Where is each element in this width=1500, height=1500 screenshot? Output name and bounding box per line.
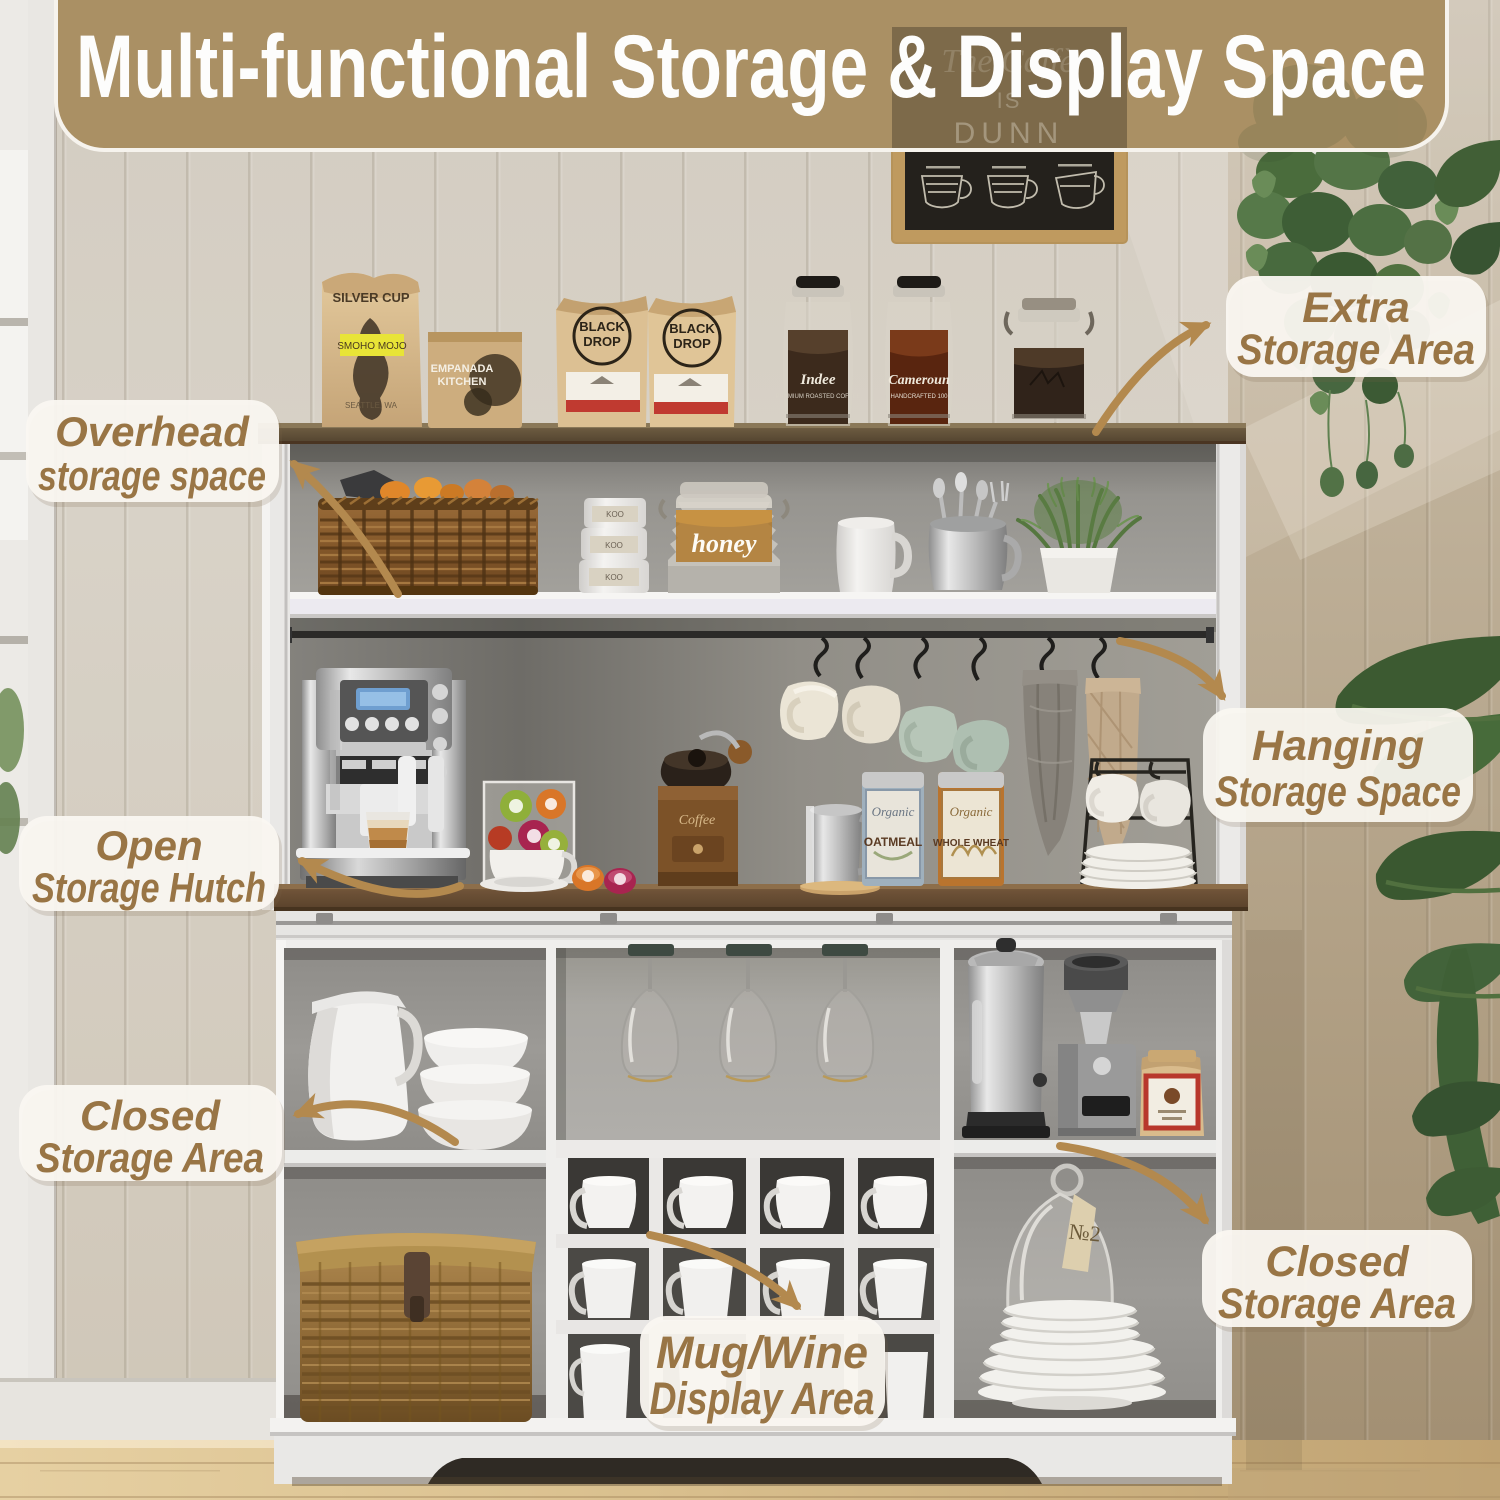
svg-text:SEATTLE, WA: SEATTLE, WA [345,401,398,410]
svg-text:Indee: Indee [800,372,836,388]
svg-text:EMPANADA: EMPANADA [431,363,494,375]
svg-text:Mug/Wine: Mug/Wine [656,1327,868,1378]
svg-text:DROP: DROP [673,336,711,351]
svg-text:Organic: Organic [872,804,915,819]
svg-text:SMOHO MOJO: SMOHO MOJO [337,341,407,352]
svg-text:Display Area: Display Area [650,1373,875,1424]
svg-text:Storage Hutch: Storage Hutch [32,864,266,911]
svg-text:Coffee: Coffee [679,813,716,828]
svg-text:Open: Open [95,822,202,869]
svg-text:OATMEAL: OATMEAL [864,835,922,849]
svg-text:honey: honey [692,529,757,558]
svg-text:SILVER CUP: SILVER CUP [332,290,409,305]
svg-text:DUNN: DUNN [954,117,1065,150]
svg-text:Organic: Organic [950,804,993,819]
svg-text:Cameroun: Cameroun [888,373,950,388]
svg-text:Overhead: Overhead [55,408,250,455]
svg-text:BLACK: BLACK [669,321,715,336]
svg-text:Closed: Closed [1265,1238,1409,1286]
svg-text:DROP: DROP [583,334,621,349]
svg-text:KOO: KOO [605,573,623,582]
svg-text:KOO: KOO [605,541,623,550]
svg-text:Storage Area: Storage Area [1237,326,1475,374]
svg-text:Storage Area: Storage Area [36,1134,264,1181]
svg-text:storage space: storage space [38,452,266,499]
svg-text:№2: №2 [1068,1218,1102,1246]
svg-text:Storage Space: Storage Space [1215,768,1461,816]
svg-text:HANDCRAFTED 100: HANDCRAFTED 100 [890,394,948,400]
svg-text:Storage Area: Storage Area [1218,1280,1456,1328]
svg-text:Multi-functional Storage & Dis: Multi-functional Storage & Display Space [76,16,1426,116]
svg-text:Hanging: Hanging [1252,722,1424,770]
svg-text:Closed: Closed [80,1092,221,1139]
svg-text:BLACK: BLACK [579,319,625,334]
svg-text:KITCHEN: KITCHEN [438,376,487,388]
svg-text:Extra: Extra [1302,284,1410,332]
svg-text:PREMIUM ROASTED COFFEE: PREMIUM ROASTED COFFEE [775,394,860,400]
svg-text:KOO: KOO [606,510,624,519]
